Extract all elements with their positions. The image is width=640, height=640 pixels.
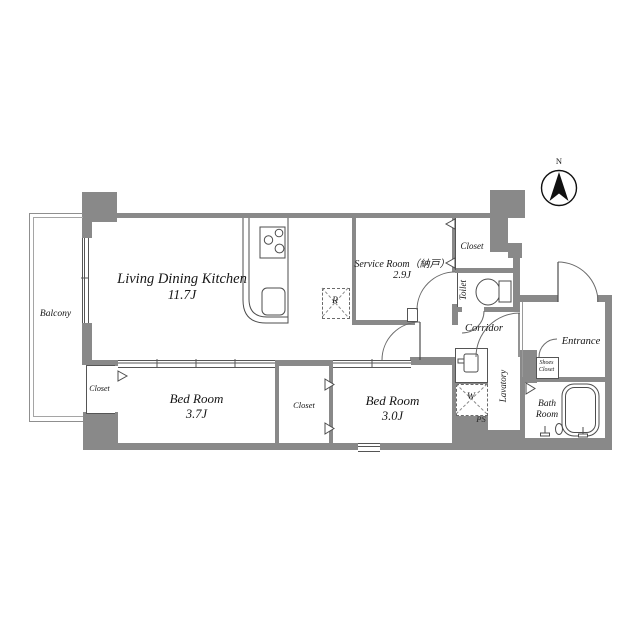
bed2-label: Bed Room 3.0J	[333, 394, 452, 423]
toilet-bowl	[476, 279, 500, 305]
fold-door-closet-left	[118, 371, 127, 381]
fridge-label: R	[322, 296, 348, 307]
shoes-closet-label: Shoes Closet	[536, 360, 557, 373]
stove-burner	[264, 236, 272, 244]
bath-drain	[556, 424, 563, 435]
washer-label: W	[456, 392, 486, 403]
ldk-size: 11.7J	[91, 287, 273, 302]
service-room-name: Service Room（納戸）	[347, 259, 457, 270]
toilet-tank	[499, 281, 511, 302]
service-room-label: Service Room（納戸） 2.9J	[347, 259, 457, 282]
toilet-label: Toilet	[458, 261, 468, 319]
fold-door-bath	[526, 383, 535, 394]
compass-north-label: N	[549, 157, 569, 167]
stove-burner	[275, 229, 283, 237]
service-room-size: 2.9J	[347, 270, 457, 282]
door-arc-ldk	[382, 322, 420, 360]
fixtures-layer	[0, 0, 640, 640]
closet-mid-label: Closet	[279, 401, 329, 411]
fold-door-closet-top	[446, 219, 455, 229]
fold-door-closet-mid	[325, 379, 334, 390]
ldk-name: Living Dining Kitchen	[91, 271, 273, 287]
shoes-closet-line2: Closet	[536, 367, 557, 374]
lavatory-faucet	[458, 359, 464, 363]
ldk-label: Living Dining Kitchen 11.7J	[91, 271, 273, 302]
bath-tap	[579, 434, 588, 437]
balcony-label: Balcony	[29, 309, 82, 320]
door-arc-entrance	[558, 262, 598, 302]
bath-room-label: Bath Room	[527, 399, 567, 420]
lavatory-label: Lavatory	[498, 350, 508, 422]
bed1-label: Bed Room 3.7J	[118, 392, 275, 421]
bathtub-outer	[562, 384, 599, 436]
bed2-size: 3.0J	[333, 409, 452, 423]
ps-label: PS	[466, 415, 496, 425]
bed1-name: Bed Room	[118, 392, 275, 407]
bed1-size: 3.7J	[118, 407, 275, 421]
bath-room-line1: Bath	[527, 399, 567, 410]
bath-room-line2: Room	[527, 410, 567, 421]
floor-plan: Balcony Living Dining Kitchen 11.7J Serv…	[0, 0, 640, 640]
closet-left-label: Closet	[85, 385, 114, 394]
entrance-label: Entrance	[551, 336, 611, 348]
bath-tap	[541, 433, 550, 436]
shoes-closet-line1: Shoes	[536, 360, 557, 367]
stove-burner	[275, 244, 284, 253]
fold-door-closet-mid	[325, 423, 334, 434]
closet-top-label: Closet	[452, 241, 492, 251]
bed2-name: Bed Room	[333, 394, 452, 409]
corridor-label: Corridor	[454, 323, 514, 335]
